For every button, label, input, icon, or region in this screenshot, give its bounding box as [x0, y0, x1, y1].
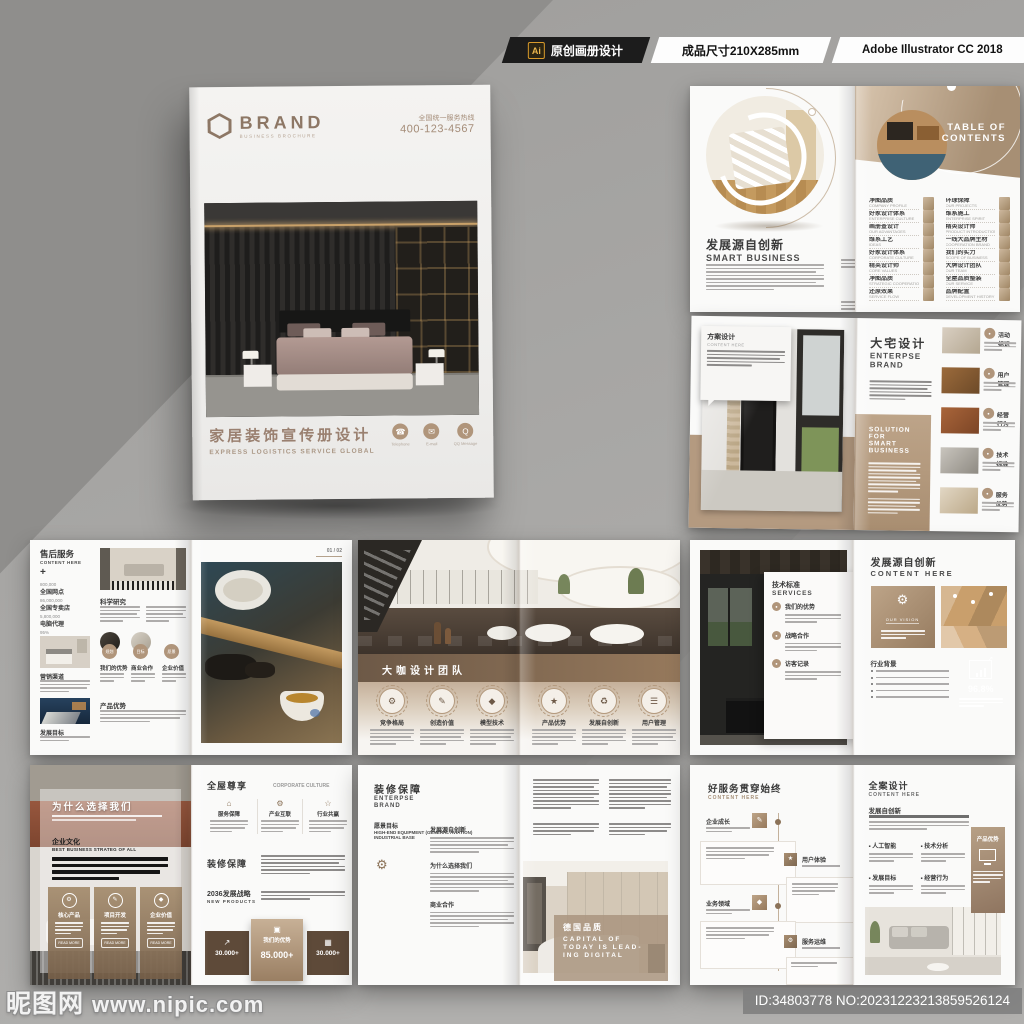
text-line — [868, 508, 920, 510]
circle-caption: 企业价值 — [162, 664, 184, 672]
text-line — [261, 869, 345, 871]
team-member: ✎ 创造价值 — [420, 688, 464, 747]
text-line — [983, 425, 1015, 427]
text-line — [52, 870, 160, 874]
spread-why-choose-us: 为什么选择我们 企业文化 BEST BUSINESS STRATEG OF AL… — [30, 765, 352, 985]
text-line — [100, 613, 137, 615]
text-line — [430, 873, 514, 875]
section-label: 商业合作 — [430, 900, 514, 909]
team-member: ♻ 发展自创新 — [582, 688, 626, 747]
bed — [276, 309, 413, 392]
text-line — [984, 345, 1016, 347]
text-line — [261, 891, 345, 893]
brand-items: ● 活动标识 ● 用户管理 ● 经营行为 — [939, 325, 1015, 526]
text-line — [881, 630, 925, 632]
text-line — [706, 271, 816, 273]
paragraph-lines — [706, 264, 824, 292]
goodservice-title-en: CONTENT HERE — [708, 795, 782, 801]
culture-col: ⚙ 产业互联 — [257, 799, 303, 834]
text-line — [470, 743, 496, 745]
text-line — [841, 308, 855, 310]
services-title-en: SERVICES — [772, 590, 853, 597]
brand-left-page: 方案设计 CONTENT HERE — [689, 316, 857, 530]
text-line — [921, 889, 965, 891]
illustrator-icon: Ai — [528, 42, 545, 59]
text-line — [706, 827, 750, 829]
text-line — [582, 743, 608, 745]
service-stats: 800,000 全国网点 86,000,000 全国专卖店 5,800,000 … — [40, 582, 92, 644]
service-right-page: 01 / 02 — [191, 540, 352, 755]
text-line — [261, 824, 299, 826]
text-line — [959, 698, 1003, 700]
text-line — [532, 736, 573, 738]
toc-heading: TABLE OF CONTENTS — [942, 122, 1006, 144]
text-line — [785, 643, 841, 645]
text-line — [261, 820, 299, 822]
text-line — [100, 721, 150, 723]
text-line — [533, 807, 571, 809]
text-line — [982, 502, 1014, 504]
text-line — [430, 922, 514, 924]
brand-right-page: 大宅设计 ENTERPSE BRAND SOLUTION FOR SMART B… — [854, 318, 1022, 532]
industry-heading: 行业背景 — [871, 658, 897, 668]
text-line — [532, 729, 576, 731]
text-line — [210, 827, 245, 829]
goodservice-right-page: 全案设计 CONTENT HERE 发展自创新 ▪ 人工智能 ▪ 技术分析 ▪ … — [853, 765, 1016, 985]
document-icon: ▣ — [251, 925, 303, 934]
text-line — [959, 702, 1003, 704]
text-line — [982, 465, 1014, 467]
diamond-icon: ◆ — [479, 688, 505, 714]
item-badge-icon: ● — [982, 488, 993, 499]
service-left-page: 售后服务 CONTENT HERE + 800,000 全国网点 86,000,… — [30, 540, 191, 755]
text-line — [430, 876, 514, 878]
text-line — [261, 859, 345, 861]
culture-en: BEST BUSINESS STRATEG OF ALL — [52, 847, 136, 852]
text-line — [868, 512, 898, 514]
guarantee-heading: 装修保障 — [207, 857, 247, 870]
culture-col-label: 产业互联 — [258, 810, 302, 818]
text-line — [533, 793, 599, 795]
item-thumb — [942, 327, 980, 354]
text-line — [609, 793, 671, 795]
title-en: SMART BUSINESS — [706, 253, 801, 263]
text-line — [162, 677, 186, 679]
text-line — [706, 264, 824, 266]
team-members-area: ⚙ 竞争格局 ✎ 创造价值 ◆ 模型技术 ★ 产品优势 ♻ 发展自创新 — [358, 682, 680, 755]
text-line — [841, 266, 855, 268]
toc-item: 画册查设计OUR ADVANTAGES — [869, 224, 934, 236]
gear-icon: ⚙ — [62, 893, 77, 908]
item-badge-icon: ● — [983, 368, 994, 379]
text-line — [430, 841, 514, 843]
german-quality-overlay: 德国品质 CAPITAL OF TODAY IS LEAD- ING DIGIT… — [554, 915, 668, 981]
why-title: 为什么选择我们 — [52, 799, 133, 813]
service-title: 售后服务 CONTENT HERE + — [40, 548, 90, 578]
text-line — [869, 885, 913, 887]
why-card: ⚙ 核心产品 READ MORE — [48, 887, 90, 979]
hotel-room-photo — [40, 636, 90, 668]
text-line — [101, 926, 129, 928]
header-original-segment: Ai 原创画册设计 — [502, 37, 650, 63]
text-line — [131, 673, 155, 675]
pencil-icon: ✎ — [836, 274, 855, 288]
toc-item: 好家设计体系CORPORATE CULTURE — [869, 250, 934, 262]
staircase-photo — [706, 96, 824, 214]
text-line — [982, 462, 1014, 464]
contact-telephone: ☎ Telephone — [391, 423, 410, 446]
toc-item: 精英设计师PRODUCT INTRODUCTION — [946, 224, 1011, 236]
why-card-label: 核心产品 — [48, 911, 90, 919]
text-line — [100, 710, 186, 712]
text-line — [609, 783, 671, 785]
text-line — [420, 733, 464, 735]
text-line — [869, 860, 895, 862]
pencil-icon: ✎ — [429, 688, 455, 714]
text-line — [533, 823, 599, 825]
member-label: 用户管理 — [632, 718, 676, 727]
badge-icon: ● — [772, 659, 781, 668]
spread-design-team: 大咖设计团队 ⚙ 竞争格局 ✎ 创造价值 ◆ 模型技术 ★ 产品优势 — [358, 540, 680, 755]
text-line — [707, 360, 785, 363]
innovation-title: 发展源自创新 CONTENT HERE — [871, 554, 954, 578]
culture-block: 企业文化 BEST BUSINESS STRATEG OF ALL — [52, 837, 136, 852]
text-line — [147, 926, 175, 928]
card-subtitle: CONTENT HERE — [707, 342, 785, 348]
enjoy-heading-en: CORPORATE CULTURE — [273, 783, 329, 789]
text-line — [210, 820, 248, 822]
text-line — [147, 929, 173, 931]
read-more-button: READ MORE — [101, 938, 129, 948]
text-line — [706, 854, 769, 856]
item-badge-icon: ● — [983, 408, 994, 419]
spread-innovation: 技术标准 SERVICES ● 我们的优势 ● 战略合作 ● 访客记录 — [690, 540, 1015, 755]
item-badge-icon: ● — [984, 328, 995, 339]
team-member: ⚙ 竞争格局 — [370, 688, 414, 747]
telephone-icon: ☎ — [392, 423, 408, 439]
arrow-up-icon: ↗ — [205, 938, 249, 947]
text-line — [52, 877, 119, 881]
text-line — [868, 466, 920, 468]
page-number: 01 / 02 — [316, 548, 342, 557]
text-line — [841, 263, 855, 265]
spread-good-service: 好服务贯穿始终 CONTENT HERE 企业成长 ✎ ★ 用户体验 业务领域 … — [690, 765, 1015, 985]
header-software-label: Adobe Illustrator CC 2018 — [862, 44, 1003, 56]
stage: Ai 原创画册设计 成品尺寸210X285mm Adobe Illustrato… — [0, 0, 1024, 1024]
cover-bedroom-photo — [204, 201, 479, 417]
text-line — [785, 618, 841, 620]
solution-band: SOLUTION FOR SMART BUSINESS — [854, 414, 932, 531]
gear-icon: ⚙ — [258, 799, 302, 808]
toc-item: 精英设计师CORE VALUES — [869, 263, 934, 275]
molecule-icon: ⚙ — [376, 857, 388, 873]
services-title-cn: 技术标准 — [772, 580, 853, 590]
text-line — [982, 505, 1014, 507]
text-line — [420, 729, 464, 731]
brand-item: ● 技术标准 — [940, 445, 1014, 486]
service-item-label: 我们的优势 — [785, 602, 815, 611]
text-line — [706, 847, 774, 849]
text-line — [430, 919, 508, 921]
member-label: 发展自创新 — [582, 718, 626, 727]
text-line — [309, 824, 347, 826]
culture-col: ☆ 行业共赢 — [307, 799, 349, 834]
feature-label: 品牌配置 — [836, 248, 855, 257]
contact-label: QQ Message — [454, 441, 478, 446]
plan-design-card: 方案设计 CONTENT HERE — [700, 326, 791, 401]
text-line — [309, 827, 344, 829]
timeline-box — [786, 957, 853, 985]
brochure-cover: BRAND BUSINESS BROCHURE 全国统一服务热线 400-123… — [189, 85, 494, 501]
design-title: 全案设计 CONTENT HERE — [869, 779, 920, 798]
text-line — [841, 301, 855, 303]
brand-name: BRAND — [239, 112, 324, 134]
text-line — [261, 831, 283, 833]
text-line — [162, 680, 176, 682]
night-road-photo — [40, 698, 90, 724]
text-line — [533, 797, 594, 799]
text-line — [430, 883, 514, 885]
feature-brand-config: ♻ 品牌配置 — [836, 232, 855, 270]
read-more-button: READ MORE — [55, 938, 83, 948]
monitor-icon: ▦ — [307, 938, 349, 947]
circle-badge: 目标 — [133, 644, 148, 659]
text-line — [982, 469, 1001, 471]
text-line — [100, 714, 186, 716]
monitor-icon — [979, 849, 996, 861]
badge-icon: ● — [772, 602, 781, 611]
text-line — [785, 646, 841, 648]
text-line — [785, 614, 841, 616]
text-line — [430, 890, 479, 892]
livingroom-photo — [100, 548, 186, 590]
text-line — [55, 929, 81, 931]
design-title-en: CONTENT HERE — [869, 792, 920, 798]
text-line — [609, 834, 645, 836]
bullet-item: ▪ 发展目标 — [869, 873, 913, 896]
text-line — [706, 851, 774, 853]
nightstand-left — [244, 365, 271, 387]
product-card-label: 产品优势 — [971, 835, 1006, 843]
timeline-label: 用户体验 — [802, 855, 826, 864]
contact-label: Telephone — [391, 441, 410, 446]
text-line — [261, 873, 310, 875]
why-card-label: 企业价值 — [140, 911, 182, 919]
text-line — [533, 786, 594, 788]
text-line — [983, 429, 1002, 431]
text-line — [791, 966, 818, 968]
pencil-icon: ✎ — [108, 893, 123, 908]
stat-center-value: 85.000+ — [251, 950, 303, 960]
band-heading: SOLUTION FOR SMART BUSINESS — [855, 414, 931, 455]
nipic-watermark: 昵图网 www.nipic.com — [6, 984, 264, 1020]
text-line — [147, 933, 163, 935]
text-line — [131, 680, 145, 682]
email-icon: ✉ — [424, 423, 440, 439]
why-card: ✎ 项目开发 READ MORE — [94, 887, 136, 979]
text-line — [881, 637, 907, 639]
text-line — [841, 259, 855, 261]
text-line — [100, 610, 140, 612]
stat-value: 30.000+ — [307, 950, 349, 957]
text-line — [609, 800, 671, 802]
overlay-cn: 德国品质 — [563, 922, 659, 933]
text-line — [870, 380, 932, 382]
industry-list — [871, 670, 949, 703]
text-line — [632, 729, 676, 731]
cover-subtitle: EXPRESS LOGISTICS SERVICE GLOBAL — [209, 448, 374, 456]
pencil-icon: ✎ — [752, 813, 767, 828]
spread-guarantee: 装修保障 ENTERPSE BRAND 愿景目标 HIGH-END EQUIPM… — [358, 765, 680, 985]
text-line — [261, 898, 310, 900]
menu-icon: ☰ — [641, 688, 667, 714]
text-line — [582, 733, 626, 735]
text-line — [706, 275, 824, 277]
toc-item: 净图品质STRATEGIC COOPERATION — [869, 276, 934, 288]
services-card: 技术标准 SERVICES ● 我们的优势 ● 战略合作 ● 访客记录 — [764, 572, 853, 739]
text-line — [869, 391, 931, 393]
text-line — [984, 349, 1003, 351]
text-line — [973, 874, 1003, 876]
text-line — [370, 733, 414, 735]
item-badge-icon: ● — [982, 448, 993, 459]
text-line — [792, 887, 838, 889]
guarantee-right-page: 德国品质 CAPITAL OF TODAY IS LEAD- ING DIGIT… — [519, 765, 680, 985]
brand-logo: BRAND BUSINESS BROCHURE — [207, 112, 324, 139]
text-line — [921, 860, 947, 862]
culture-col-label: 服务保障 — [207, 810, 251, 818]
text-line — [609, 790, 671, 792]
text-line — [868, 505, 916, 507]
recycle-icon: ♻ — [591, 688, 617, 714]
text-line — [131, 677, 155, 679]
feature-label: 愿景服务 — [836, 290, 855, 299]
toc-item: 还原效果SERVICE FLOW — [869, 289, 934, 301]
text-line — [52, 857, 168, 861]
text-line — [420, 736, 461, 738]
stat-card-left: ↗ 30.000+ — [205, 931, 249, 975]
text-line — [101, 933, 117, 935]
text-line — [470, 733, 514, 735]
goodservice-title: 好服务贯穿始终 CONTENT HERE — [708, 781, 782, 801]
text-line — [706, 278, 824, 280]
text-line — [706, 909, 750, 911]
plus-mark: + — [40, 567, 90, 578]
member-label: 创造价值 — [420, 718, 464, 727]
livingroom-circle-photo — [877, 110, 947, 180]
enjoy-heading: 全屋尊享 — [207, 779, 247, 792]
diamond-icon: ◆ — [154, 893, 169, 908]
text-line — [100, 620, 123, 622]
brand-subtitle: BUSINESS BROCHURE — [240, 133, 325, 139]
text-line — [869, 398, 905, 400]
toc-item: 品牌配置DEVELOPMENT HISTORY — [946, 289, 1011, 301]
text-line — [146, 620, 169, 622]
header-software-segment: Adobe Illustrator CC 2018 — [832, 37, 1024, 63]
text-line — [162, 673, 186, 675]
toc-right-page: TABLE OF CONTENTS 净图品质COMPANY PROFILE 好家… — [855, 86, 1020, 312]
recycle-icon: ♻ — [836, 232, 855, 246]
text-line — [921, 885, 965, 887]
text-line — [100, 677, 124, 679]
text-line — [792, 883, 838, 885]
gear-person-icon: ⚙︎ — [871, 592, 935, 608]
text-line — [706, 938, 745, 940]
text-line — [100, 606, 140, 608]
percent-tile: ↗ 96.8% — [955, 652, 1008, 743]
text-line — [868, 487, 920, 489]
contact-qq: Q QQ Message — [454, 423, 478, 446]
text-line — [582, 740, 626, 742]
text-line — [706, 931, 774, 933]
spread-brand: 方案设计 CONTENT HERE 大宅设计 ENTERPSE BRAND SO… — [689, 316, 1022, 533]
text-line — [609, 804, 671, 806]
circle-badge: 愿景 — [164, 644, 179, 659]
text-line — [707, 364, 752, 366]
text-line — [868, 462, 920, 464]
innovation-subheading: 发展自创新 — [869, 805, 902, 815]
strategy-heading: 2036发展战略 NEW PRODUCTS — [207, 889, 256, 904]
text-line — [868, 501, 920, 503]
text-line — [632, 743, 658, 745]
service-item-label: 战略合作 — [785, 631, 809, 640]
toc-item: 我们的实力SCOPE OF BUSINESS — [946, 250, 1011, 262]
gear-icon: ⚙ — [379, 688, 405, 714]
toc-left-page: 发展源自创新 SMART BUSINESS ♻ 品牌配置 ✎ 愿景服务 — [690, 86, 855, 312]
text-line — [868, 469, 916, 471]
text-line — [707, 357, 780, 360]
text-line — [609, 786, 667, 788]
text-line — [791, 962, 837, 964]
brand-item: ● 用户管理 — [941, 365, 1015, 406]
bullet-item: ▪ 经营行为 — [921, 873, 965, 896]
text-line — [582, 729, 626, 731]
text-line — [100, 717, 180, 719]
toc-item: 维系工艺IDEAS — [869, 237, 934, 249]
nightstand-right — [416, 363, 443, 385]
tea-photo — [201, 562, 342, 743]
text-line — [370, 736, 411, 738]
text-line — [430, 912, 514, 914]
text-line — [420, 740, 464, 742]
text-line — [785, 650, 817, 652]
text-line — [869, 857, 913, 859]
text-line — [309, 820, 347, 822]
text-line — [309, 831, 331, 833]
team-member: ◆ 模型技术 — [470, 688, 514, 747]
text-line — [609, 779, 671, 781]
text-line — [533, 804, 599, 806]
stat-value: 30.000+ — [205, 950, 249, 957]
text-line — [983, 422, 1015, 424]
item-thumb — [941, 367, 979, 394]
bullet-item: ▪ 技术分析 — [921, 841, 965, 864]
innovation-left-page: 技术标准 SERVICES ● 我们的优势 ● 战略合作 ● 访客记录 — [690, 540, 853, 755]
text-line — [52, 864, 168, 868]
cover-hotline: 全国统一服务热线 400-123-4567 — [400, 113, 475, 136]
stat-card-center: ▣ 我们的优势 85.000+ — [251, 919, 303, 981]
text-line — [533, 800, 599, 802]
text-line — [40, 736, 90, 738]
text-line — [101, 922, 129, 924]
toc-list: 净图品质COMPANY PROFILE 好家设计体系ENTERPRISE CUL… — [869, 198, 1010, 304]
text-line — [973, 871, 1003, 873]
circle-badge: 规划 — [102, 644, 117, 659]
toc-item: 净图品质COMPANY PROFILE — [869, 198, 934, 210]
text-line — [869, 825, 969, 827]
why-card-label: 项目开发 — [94, 911, 136, 919]
text-line — [785, 621, 817, 623]
